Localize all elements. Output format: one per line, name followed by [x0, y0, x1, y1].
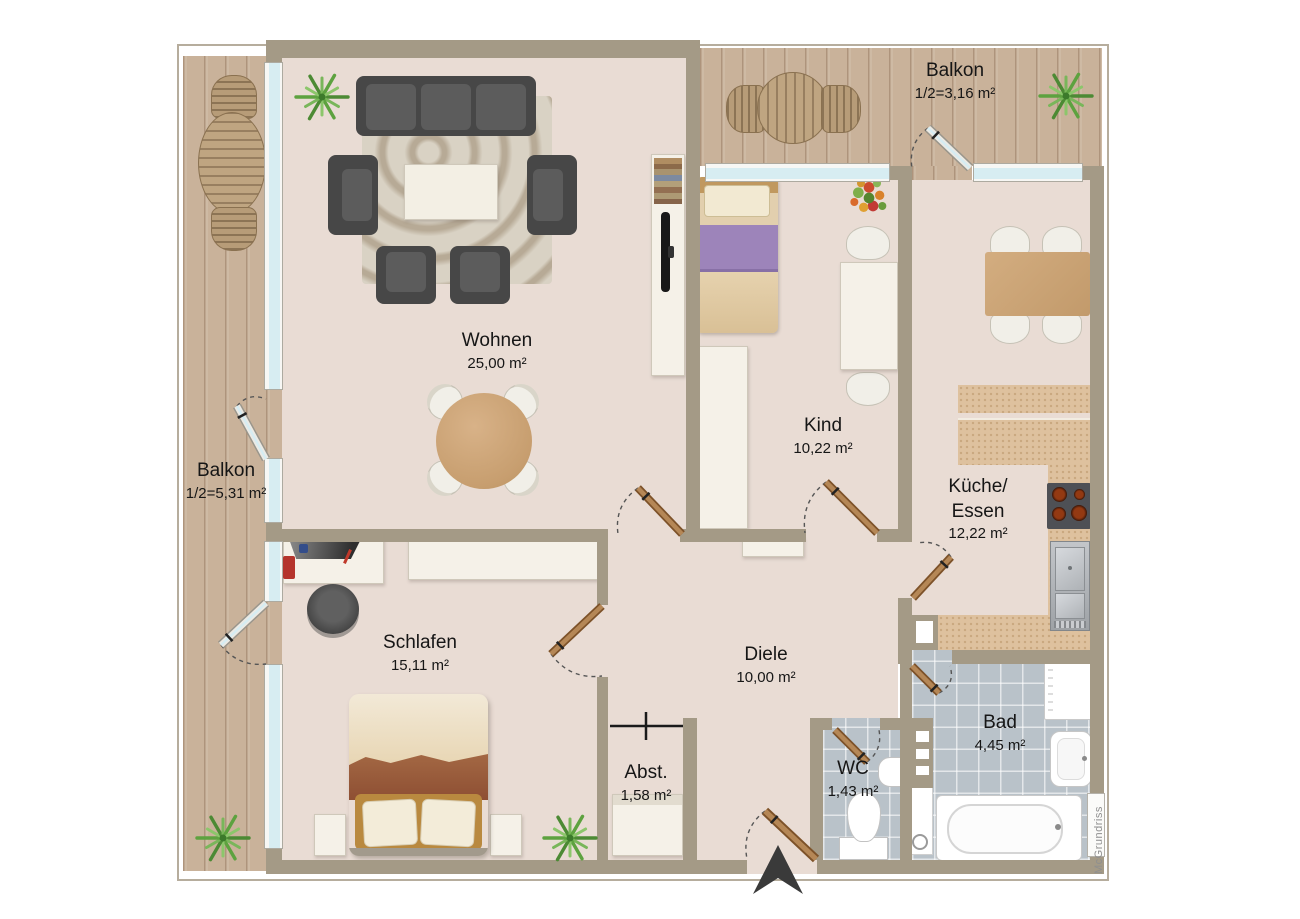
room-area: 25,00 m² — [417, 354, 577, 374]
room-name: Schlafen — [340, 631, 500, 656]
room-label-bad: Bad 4,45 m² — [920, 711, 1080, 755]
entrance-arrow-icon — [753, 845, 803, 894]
room-area: 12,22 m² — [898, 524, 1058, 544]
abst-door — [610, 712, 683, 740]
balcony-doors — [221, 128, 970, 645]
room-name: Kind — [743, 414, 903, 439]
floor-plan: Wohnen 25,00 m² Kind 10,22 m² Küche/ Ess… — [0, 0, 1300, 919]
room-label-schlafen: Schlafen 15,11 m² — [340, 631, 500, 675]
room-label-balkon-left: Balkon 1/2=5,31 m² — [146, 459, 306, 503]
room-area: 1,58 m² — [566, 786, 726, 806]
room-label-diele: Diele 10,00 m² — [686, 643, 846, 687]
room-area: 10,22 m² — [743, 439, 903, 459]
door-handles — [226, 132, 948, 824]
room-area: 1/2=5,31 m² — [146, 484, 306, 504]
watermark: McGrundriss — [1093, 794, 1109, 874]
room-name: Küche/ — [898, 475, 1058, 500]
plant-icon — [540, 808, 600, 868]
plant-icon — [193, 808, 253, 868]
room-name: Bad — [920, 711, 1080, 736]
room-label-wc: WC 1,43 m² — [773, 757, 933, 801]
room-area: 1/2=3,16 m² — [875, 84, 1035, 104]
room-name: Balkon — [875, 59, 1035, 84]
room-label-abst: Abst. 1,58 m² — [566, 761, 726, 805]
plant-icon — [292, 67, 352, 127]
room-area: 10,00 m² — [686, 668, 846, 688]
room-area: 4,45 m² — [920, 736, 1080, 756]
room-label-kueche: Küche/ Essen 12,22 m² — [898, 475, 1058, 544]
room-name: Wohnen — [417, 329, 577, 354]
plant-icon — [1036, 66, 1096, 126]
room-name: Diele — [686, 643, 846, 668]
room-area: 15,11 m² — [340, 656, 500, 676]
room-name: Abst. — [566, 761, 726, 786]
room-name: Balkon — [146, 459, 306, 484]
room-label-kind: Kind 10,22 m² — [743, 414, 903, 458]
room-name: WC — [773, 757, 933, 782]
room-name: Essen — [898, 500, 1058, 525]
room-label-wohnen: Wohnen 25,00 m² — [417, 329, 577, 373]
room-label-balkon-top: Balkon 1/2=3,16 m² — [875, 59, 1035, 103]
room-area: 1,43 m² — [773, 782, 933, 802]
